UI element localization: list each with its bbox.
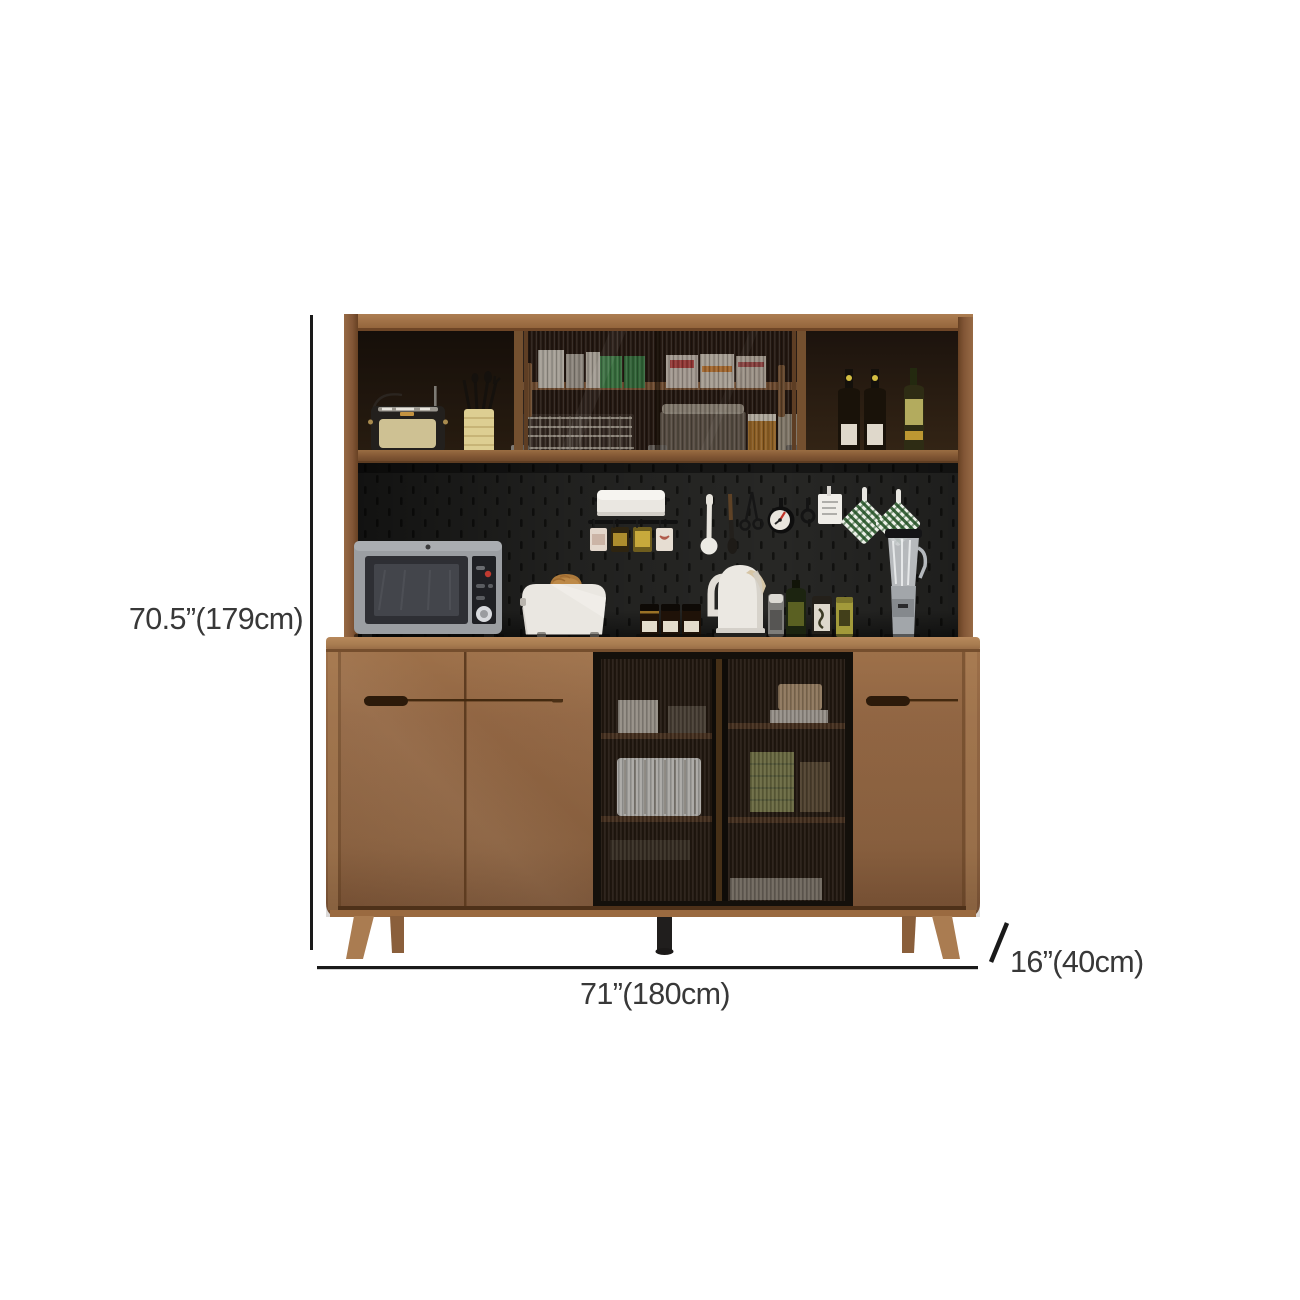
svg-text:70.5”(179cm): 70.5”(179cm) [129, 602, 303, 636]
svg-text:16”(40cm): 16”(40cm) [1010, 945, 1144, 979]
svg-text:71”(180cm): 71”(180cm) [580, 977, 730, 1011]
